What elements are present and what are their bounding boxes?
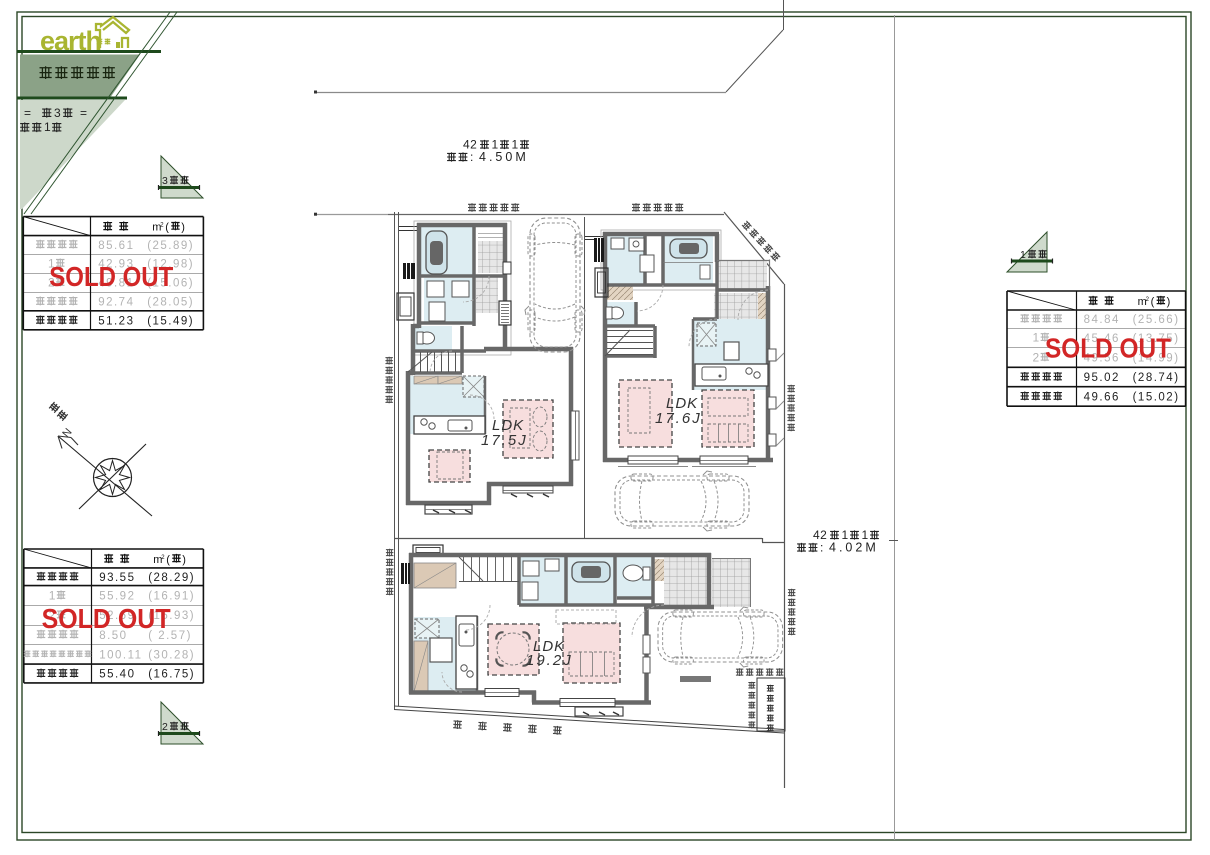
svg-text:95.02: 95.02 <box>1084 372 1120 384</box>
svg-text:=: = <box>80 106 87 120</box>
svg-text:(: ( <box>166 554 170 566</box>
svg-text:SOLD OUT: SOLD OUT <box>42 603 171 634</box>
svg-text:85.61: 85.61 <box>98 240 134 252</box>
svg-text:(28.74): (28.74) <box>1133 372 1180 384</box>
svg-text:SOLD OUT: SOLD OUT <box>49 261 173 292</box>
svg-text:(25.66): (25.66) <box>1133 314 1180 326</box>
svg-text:84.84: 84.84 <box>1084 314 1120 326</box>
svg-text:(: ( <box>1151 296 1155 308</box>
svg-text:(15.49): (15.49) <box>147 316 194 328</box>
svg-text:55.92: 55.92 <box>99 591 135 603</box>
svg-text::: : <box>470 150 473 164</box>
svg-text:2: 2 <box>162 721 168 733</box>
svg-text::: : <box>820 541 823 555</box>
svg-text:100.11: 100.11 <box>99 650 142 662</box>
svg-text:1: 1 <box>49 588 56 602</box>
svg-text:49.66: 49.66 <box>1084 392 1120 404</box>
svg-text:3: 3 <box>54 106 61 120</box>
svg-text:(15.02): (15.02) <box>1133 392 1180 404</box>
svg-text:): ) <box>1167 296 1171 308</box>
svg-text:1: 1 <box>44 120 51 134</box>
svg-text:17.6J: 17.6J <box>655 410 702 427</box>
svg-text:SOLD OUT: SOLD OUT <box>1045 333 1171 364</box>
svg-text:51.23: 51.23 <box>98 316 134 328</box>
svg-text:(28.05): (28.05) <box>147 297 194 309</box>
svg-text:(30.28): (30.28) <box>148 650 195 662</box>
svg-text:4.50M: 4.50M <box>479 150 529 164</box>
svg-text:93.55: 93.55 <box>99 572 135 584</box>
svg-text:(16.75): (16.75) <box>148 669 195 681</box>
svg-text:(25.89): (25.89) <box>147 240 194 252</box>
svg-text:=: = <box>24 106 31 120</box>
svg-text:): ) <box>181 222 185 234</box>
svg-text:3: 3 <box>162 175 168 187</box>
svg-text:): ) <box>182 554 186 566</box>
svg-text:1: 1 <box>1033 331 1040 345</box>
svg-text:92.74: 92.74 <box>98 297 134 309</box>
svg-text:17.5J: 17.5J <box>481 432 528 449</box>
svg-text:4.02M: 4.02M <box>829 541 879 555</box>
svg-text:19.2J: 19.2J <box>526 652 573 669</box>
svg-text:2: 2 <box>1033 350 1040 364</box>
svg-text:55.40: 55.40 <box>99 669 135 681</box>
svg-text:1: 1 <box>1020 249 1026 261</box>
svg-text:(28.29): (28.29) <box>148 572 195 584</box>
svg-text:(: ( <box>165 222 169 234</box>
svg-text:(16.91): (16.91) <box>148 591 195 603</box>
